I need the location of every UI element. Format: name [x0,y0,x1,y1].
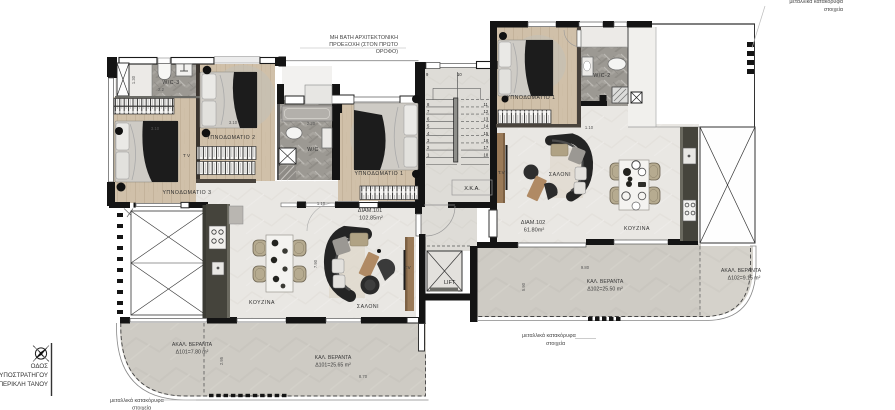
svg-text:Δ102=25.50 m²: Δ102=25.50 m² [587,287,623,293]
svg-text:10: 10 [457,72,462,77]
svg-text:7.90: 7.90 [313,259,318,268]
svg-text:17: 17 [484,145,489,150]
svg-text:1.10: 1.10 [317,201,326,206]
svg-text:ΔΙΑΜ.101: ΔΙΑΜ.101 [358,208,383,214]
svg-text:T.V: T.V [498,170,506,175]
svg-text:ΠΕΡΙΚΛΗ ΤΑΝΟΥ: ΠΕΡΙΚΛΗ ΤΑΝΟΥ [0,381,48,388]
svg-text:5.90: 5.90 [521,282,526,291]
svg-text:ΜΗ ΒΑΤΗ ΑΡΧΙΤΕΚΤΟΝΙΚΗ: ΜΗ ΒΑΤΗ ΑΡΧΙΤΕΚΤΟΝΙΚΗ [330,35,398,41]
svg-text:ΟΔΟΣ: ΟΔΟΣ [31,363,48,370]
svg-text:11: 11 [484,102,489,107]
svg-text:ΣΑΛΟΝΙ: ΣΑΛΟΝΙ [549,172,571,178]
svg-text:ΠΡΟΕΞΟΧΗ (ΣΤΟΝ ΠΡΩΤΟ: ΠΡΟΕΞΟΧΗ (ΣΤΟΝ ΠΡΩΤΟ [329,42,398,48]
svg-text:102.85m²: 102.85m² [359,216,383,222]
svg-text:2.95: 2.95 [219,356,224,365]
svg-text:ΥΠΝΟΔΩΜΑΤΙΟ 1: ΥΠΝΟΔΩΜΑΤΙΟ 1 [506,95,555,101]
svg-text:ΑΚΑΛ. ΒΕΡΑΝΤΑ: ΑΚΑΛ. ΒΕΡΑΝΤΑ [721,268,762,274]
svg-text:T.V: T.V [404,265,412,270]
svg-text:8.70: 8.70 [359,374,368,379]
svg-text:ΥΠΝΟΔΩΜΑΤΙΟ 2: ΥΠΝΟΔΩΜΑΤΙΟ 2 [206,135,255,141]
svg-text:2.20: 2.20 [307,121,316,126]
svg-text:Χ.Κ.Α.: Χ.Κ.Α. [464,186,480,192]
svg-text:14: 14 [484,124,489,129]
svg-text:ΚΟΥΖΙΝΑ: ΚΟΥΖΙΝΑ [624,226,650,232]
svg-text:μεταλλικά κατακόρυφα: μεταλλικά κατακόρυφα [522,332,576,339]
svg-text:LIFT: LIFT [444,280,456,286]
svg-text:μεταλλικά κατακόρυφα: μεταλλικά κατακόρυφα [789,0,843,5]
svg-text:ΥΠΝΟΔΩΜΑΤΙΟ 3: ΥΠΝΟΔΩΜΑΤΙΟ 3 [162,190,211,196]
svg-text:Δ101=7.80 m²: Δ101=7.80 m² [176,350,209,356]
svg-text:ΔΙΑΜ.102: ΔΙΑΜ.102 [521,220,546,226]
svg-text:2.2: 2.2 [158,87,164,92]
svg-text:W/C-2: W/C-2 [593,73,610,79]
svg-text:ΟΡΟΦΟ): ΟΡΟΦΟ) [376,49,398,55]
svg-text:1.10: 1.10 [585,125,594,130]
svg-text:στοιχεία: στοιχεία [546,341,565,347]
svg-text:ΚΑΛ. ΒΕΡΑΝΤΑ: ΚΑΛ. ΒΕΡΑΝΤΑ [587,279,624,285]
svg-text:15: 15 [484,131,489,136]
svg-text:ΚΑΛ. ΒΕΡΑΝΤΑ: ΚΑΛ. ΒΕΡΑΝΤΑ [315,355,352,361]
svg-text:W/C-3: W/C-3 [162,80,179,86]
svg-text:3.10: 3.10 [229,120,238,125]
svg-text:1.30: 1.30 [131,75,136,84]
svg-text:13: 13 [484,116,489,121]
svg-text:Δ101=25.65 m²: Δ101=25.65 m² [315,363,351,369]
svg-text:στοιχεία: στοιχεία [132,406,151,410]
svg-text:ΣΑΛΟΝΙ: ΣΑΛΟΝΙ [357,304,379,310]
svg-text:μεταλλικά κατακόρυφα: μεταλλικά κατακόρυφα [110,397,164,404]
svg-text:9.80: 9.80 [581,265,590,270]
svg-text:61.80m²: 61.80m² [524,228,545,234]
svg-text:3.10: 3.10 [151,126,160,131]
svg-text:16: 16 [484,138,489,143]
svg-text:ΑΚΑΛ. ΒΕΡΑΝΤΑ: ΑΚΑΛ. ΒΕΡΑΝΤΑ [172,342,213,348]
svg-text:στοιχεία: στοιχεία [824,7,843,13]
svg-text:T V: T V [183,153,191,158]
svg-text:Δ102=9.15 m²: Δ102=9.15 m² [728,276,761,282]
svg-text:ΥΠΝΟΔΩΜΑΤΙΟ 1: ΥΠΝΟΔΩΜΑΤΙΟ 1 [354,171,403,177]
svg-text:ΚΟΥΖΙΝΑ: ΚΟΥΖΙΝΑ [249,300,275,306]
svg-text:18: 18 [484,152,489,157]
svg-text:12: 12 [484,109,489,114]
svg-text:ΥΠΟΣΤΡΑΤΗΓΟΥ: ΥΠΟΣΤΡΑΤΗΓΟΥ [0,372,48,379]
svg-text:W/C: W/C [307,147,319,153]
